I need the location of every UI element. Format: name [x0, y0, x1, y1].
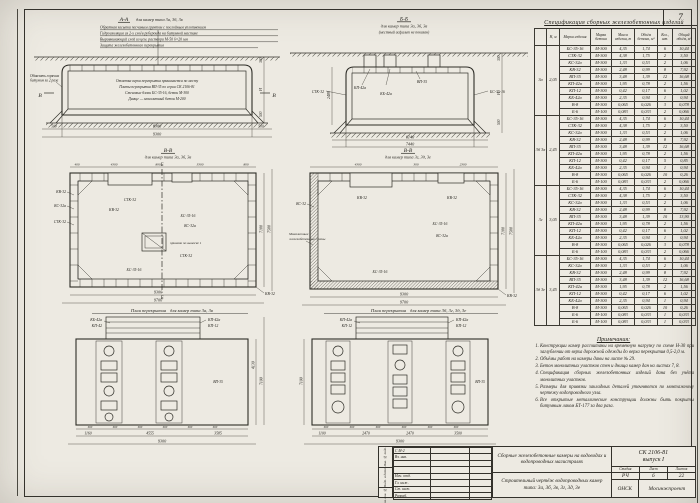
note-line: Гидроизоляция из 2-х слоёв рубероида на … — [99, 31, 198, 36]
spec-cell: БС-35-16 — [560, 186, 591, 193]
spec-cell: 0,99 — [635, 67, 658, 74]
spec-cell: КВ-32 — [560, 67, 591, 74]
spec-cell: 1,33 — [612, 130, 635, 137]
spec-cell: 6 — [658, 88, 673, 95]
spec-cell: 16,68 — [673, 74, 696, 81]
dim-label: 9300 — [153, 132, 162, 137]
spec-cell: 0,99 — [635, 137, 658, 144]
hatch-necks — [364, 55, 440, 67]
spec-row: КВ-32М-3002,480,9987,92 — [535, 137, 696, 144]
spec-cell: 4,35 — [612, 186, 635, 193]
spec-cell: КП-42а — [560, 221, 591, 228]
note-line: Защита железобетонного перекрытия — [100, 44, 164, 48]
spec-cell: 0,94 — [635, 165, 658, 172]
spec-cell: 0,94 — [673, 95, 696, 102]
spec-cell: 3,50 — [673, 193, 696, 200]
spec-cell: 0,065 — [612, 242, 635, 249]
cut-marker: Б — [160, 163, 164, 168]
spec-cell: М-300 — [591, 277, 612, 284]
spec-header: Н, м — [547, 29, 560, 46]
part-label: БС-35-16 — [180, 214, 196, 218]
spec-row: 3д 3е3,45БС-35-16М-3004,351,74610,44 — [535, 256, 696, 263]
spec-cell: 6 — [658, 186, 673, 193]
spec-cell: М-300 — [591, 284, 612, 291]
spec-cell: 0,53 — [635, 130, 658, 137]
spec-cell: М-300 — [591, 207, 612, 214]
title-block-side: Инв. № подл. Подп. и дата Взам. инв. № — [379, 447, 393, 497]
dim-label: 9300 — [154, 290, 163, 295]
spec-cell: 1,74 — [635, 116, 658, 123]
spec-cell: 0,26 — [673, 172, 696, 179]
dim-label: 8300 — [153, 124, 162, 129]
spec-cell: 10 — [658, 305, 673, 312]
spec-row: КП-42аМ-3001,950,7821,56 — [535, 284, 696, 291]
signature-scribble: ммм — [471, 461, 479, 466]
dim-label: 7100 — [260, 377, 264, 385]
part-label: ВП-35 — [475, 380, 485, 384]
spec-cell: 10,44 — [673, 46, 696, 53]
spec-cell: 2 — [658, 284, 673, 291]
spec-cell: КВ-32 — [560, 207, 591, 214]
sheet-value: 6 — [640, 473, 668, 480]
spec-header — [535, 29, 547, 46]
slab-right-panel: План перекрытия для камер типа 3б, 3г, 3… — [288, 305, 532, 448]
spec-cell: 4,35 — [612, 256, 635, 263]
spec-row: Б-6М-1000,0830,03310,033 — [535, 312, 696, 319]
spec-cell: КП-12 — [560, 158, 591, 165]
spec-cell: СТК-32 — [560, 123, 591, 130]
note-item: Спецификация сборных железобетонных изде… — [540, 371, 694, 383]
spec-cell: 1,95 — [612, 81, 635, 88]
note-line: Плиты перекрытия ВП-35 по серии СК 2106-… — [118, 85, 195, 89]
spec-cell: 1,39 — [635, 144, 658, 151]
dim-label: 800 — [243, 163, 248, 167]
spec-cell: 2,35 — [612, 298, 635, 305]
spec-cell: Б-6 — [560, 249, 591, 256]
section-bb-subtitle: для камер типа 3а, 3б, 3в — [381, 24, 428, 30]
spec-row: КП-12М-3000,420,1761,02 — [535, 228, 696, 235]
plan-left-panel: В-В для камер типа 3а, 3б, 3в 400 4300 8… — [50, 145, 290, 308]
spec-cell: 10 — [658, 214, 673, 221]
spec-row: КП-12М-3000,420,1750,85 — [535, 158, 696, 165]
sheet-frame-left — [17, 9, 18, 496]
spec-cell: 0,85 — [673, 158, 696, 165]
part-label: КВ-32 — [264, 292, 275, 296]
dim-label: 400 — [74, 163, 79, 167]
spec-row: КП-12М-3000,420,1761,02 — [535, 291, 696, 298]
spec-row: КС-32аМ-3001,330,5321,06 — [535, 200, 696, 207]
title-block: Инв. № подл. Подп. и дата Взам. инв. № С… — [378, 446, 696, 498]
dim-label: 1160 — [84, 432, 91, 436]
spec-cell: М-300 — [591, 186, 612, 193]
spec-cell: 1,02 — [673, 228, 696, 235]
signature-scribble: ммм — [471, 493, 479, 498]
spec-cell: 10 — [658, 172, 673, 179]
specification-title: Спецификация сборных железобетонных изде… — [534, 20, 694, 26]
spec-cell: 0,083 — [612, 179, 635, 186]
part-label: КВ-32 — [108, 208, 119, 212]
spec-cell: 0,94 — [673, 165, 696, 172]
spec-cell: КБ-42а — [560, 165, 591, 172]
spec-cell: 0,033 — [635, 312, 658, 319]
note-line: Обратная засыпка песчаным грунтом с посл… — [100, 25, 207, 30]
spec-row: ВП-35М-3003,481,391216,68 — [535, 74, 696, 81]
spec-cell: М-300 — [591, 144, 612, 151]
dim-label: 300 — [497, 55, 501, 61]
part-label: КП-42 — [91, 324, 102, 328]
part-label: КП-12 — [207, 324, 218, 328]
spec-cell: БС-35-16 — [560, 46, 591, 53]
monolithic-wall — [310, 173, 318, 289]
spec-cell: 0,94 — [635, 298, 658, 305]
spec-cell: М-100 — [591, 179, 612, 186]
spec-row: В-8М-3000,0650,02630,078 — [535, 102, 696, 109]
spec-cell: 1 — [658, 235, 673, 242]
spec-row: КС-32аМ-3001,330,5321,06 — [535, 263, 696, 270]
spec-cell: 0,083 — [612, 312, 635, 319]
spec-cell: 0,033 — [673, 319, 696, 326]
spec-cell: 1,75 — [635, 123, 658, 130]
spec-cell: КС-32а — [560, 263, 591, 270]
spec-cell: М-300 — [591, 298, 612, 305]
signature-name-scribble: ммммм — [432, 493, 445, 498]
spec-cell: 1,56 — [673, 221, 696, 228]
spec-cell: М-100 — [591, 319, 612, 326]
part-label: КВ-32 — [356, 196, 367, 200]
spec-cell: 0,026 — [635, 242, 658, 249]
spec-cell: В-8 — [560, 172, 591, 179]
hatch-opening-column — [388, 341, 412, 423]
spec-cell: М-300 — [591, 46, 612, 53]
spec-cell: В-8 — [560, 305, 591, 312]
spec-cell: КБ-42а — [560, 95, 591, 102]
dim-label: 7100 — [501, 227, 506, 235]
spec-height-cell: 2,05 — [547, 46, 560, 116]
spec-cell: 0,17 — [635, 291, 658, 298]
stamp-sig-table: С М-2ммммммммВз. инв.ммммммммммммммммммм… — [393, 447, 492, 500]
spec-cell: 1 — [658, 312, 673, 319]
dim-label: 2300 — [460, 163, 467, 167]
part-label: КВ-32 — [446, 196, 457, 200]
spec-cell: 1 — [658, 165, 673, 172]
spec-cell: 2,48 — [612, 67, 635, 74]
dim-label: 600 — [376, 425, 381, 429]
spec-cell: 1,39 — [635, 74, 658, 81]
hatch-opening-column — [156, 341, 182, 423]
spec-header: Марка бетона — [591, 29, 612, 46]
dim-label: 7500 — [509, 227, 514, 235]
spec-cell: 3,50 — [673, 123, 696, 130]
dim-label: 1100 — [318, 432, 325, 436]
spec-cell: 2,48 — [612, 137, 635, 144]
spec-cell: 1,95 — [612, 221, 635, 228]
spec-cell: М-300 — [591, 158, 612, 165]
organization-name: Мосинжпроект — [639, 480, 695, 497]
spec-cell: КВ-32 — [560, 137, 591, 144]
dim-label: 600 — [88, 425, 93, 429]
spec-cell: 0,17 — [635, 228, 658, 235]
spec-cell: 7,92 — [673, 137, 696, 144]
signature-role: Разраб. — [393, 493, 430, 499]
pit-label: приямок по выноске 1 — [170, 241, 202, 245]
wall-notch — [172, 173, 192, 182]
spec-cell: 5 — [658, 158, 673, 165]
note-item: Размеры для привязки закладных деталей у… — [540, 385, 694, 397]
spec-cell: 6 — [658, 228, 673, 235]
spec-cell: КБ-42а — [560, 235, 591, 242]
spec-cell: М-300 — [591, 200, 612, 207]
spec-row: КВ-32М-3002,480,9987,92 — [535, 207, 696, 214]
spec-cell: 2 — [658, 179, 673, 186]
specification-table: Н, м Марка изделия Марка бетона Масса из… — [534, 28, 696, 326]
section-aa-panel: А-А для камер типа 3а, 3б, 3в Обратная з… — [28, 13, 286, 147]
notes-title: Примечания: — [533, 337, 694, 343]
spec-cell: 6 — [658, 256, 673, 263]
spec-row: КБ-42аМ-3002,350,9410,94 — [535, 95, 696, 102]
spec-header: Масса изделия, т — [612, 29, 635, 46]
spec-cell: 1,56 — [673, 284, 696, 291]
spec-cell: 4,38 — [612, 53, 635, 60]
spec-cell: 16,68 — [673, 277, 696, 284]
spec-cell: 1,06 — [673, 263, 696, 270]
signature-scribble: ммм — [471, 468, 479, 473]
spec-cell: БС-35-16 — [560, 116, 591, 123]
spec-cell: М-300 — [591, 256, 612, 263]
spec-row: СТК-32М-3004,381,7523,50 — [535, 53, 696, 60]
ground-hatch — [290, 53, 528, 57]
spec-cell: 4,38 — [612, 193, 635, 200]
mono-label: Монолитные — [288, 232, 309, 236]
spec-cell: М-100 — [591, 312, 612, 319]
part-label: КБ-42а — [379, 92, 392, 96]
spec-cell: М-300 — [591, 242, 612, 249]
spec-row: СТК-32М-3004,381,7523,50 — [535, 123, 696, 130]
signature-name-scribble: ммммм — [432, 480, 445, 485]
spec-cell: 2,35 — [612, 165, 635, 172]
spec-header: Объём бетона, м³ — [635, 29, 658, 46]
spec-cell: 1,75 — [635, 193, 658, 200]
spec-cell: 1,56 — [673, 81, 696, 88]
spec-cell: 4,35 — [612, 116, 635, 123]
spec-cell: 0,42 — [612, 158, 635, 165]
spec-cell: Б-6 — [560, 312, 591, 319]
left-note: Обмазать горячим — [30, 74, 60, 78]
spec-cell: 0,033 — [673, 312, 696, 319]
spec-cell: 2,48 — [612, 270, 635, 277]
spec-cell: 0,53 — [635, 200, 658, 207]
spec-cell: М-300 — [591, 263, 612, 270]
spec-cell: 0,94 — [673, 298, 696, 305]
spec-cell: 2 — [658, 151, 673, 158]
spec-cell: 0,066 — [673, 109, 696, 116]
spec-cell: 7,92 — [673, 270, 696, 277]
part-label: БС-35-16 — [372, 270, 388, 274]
spec-cell: 0,083 — [612, 249, 635, 256]
spec-cell: М-300 — [591, 291, 612, 298]
dim-label: 4130 — [252, 361, 256, 369]
stage-sheet-cell: Стадия Лист Листов РЧ 6 22 — [612, 467, 695, 480]
spec-cell: 2,35 — [612, 235, 635, 242]
spec-cell: М-300 — [591, 60, 612, 67]
spec-row: 3а2,05БС-35-16М-3004,351,74610,44 — [535, 46, 696, 53]
part-label: СТК-32 — [54, 220, 66, 224]
spec-cell: КП-42а — [560, 151, 591, 158]
dim-label: 6140 — [406, 135, 415, 140]
dim-label: 9300 — [158, 439, 167, 444]
spec-cell: ВП-35 — [560, 74, 591, 81]
slab-joints — [68, 65, 246, 71]
dim-label: 300 — [259, 57, 263, 63]
slab-left-panel: План перекрытия для камер типа 3а, 3в КБ… — [50, 305, 290, 448]
spec-cell: 1,74 — [635, 186, 658, 193]
project-title: Сборные железобетонные камеры на водовод… — [493, 447, 611, 473]
slab-title: План перекрытия — [370, 308, 406, 313]
spec-cell: 12 — [658, 144, 673, 151]
spec-row: КС-32аМ-3001,330,5321,06 — [535, 60, 696, 67]
spec-cell: КС-32а — [560, 200, 591, 207]
spec-cell: М-300 — [591, 123, 612, 130]
spec-cell: 0,033 — [635, 249, 658, 256]
part-label: КВ-32 — [506, 294, 517, 298]
spec-cell: 0,94 — [635, 235, 658, 242]
spec-cell: 0,078 — [673, 102, 696, 109]
spec-cell: 2 — [658, 123, 673, 130]
spec-cell: КС-32а — [560, 60, 591, 67]
spec-cell: 0,033 — [635, 109, 658, 116]
spec-cell: 4,38 — [612, 123, 635, 130]
chamber-outline — [346, 67, 474, 125]
plan-subtitle: для камер типа 3г, 3д, 3е — [385, 155, 431, 161]
spec-cell: 4,35 — [612, 46, 635, 53]
spec-cell: 8 — [658, 207, 673, 214]
dim-label: 600 — [188, 425, 193, 429]
spec-cell: ВП-35 — [560, 144, 591, 151]
spec-cell: 1,39 — [635, 214, 658, 221]
part-label: КП-12 — [341, 324, 352, 328]
spec-row: 3г3,05БС-35-16М-3004,351,74610,44 — [535, 186, 696, 193]
section-aa-notes: Обратная засыпка песчаным грунтом с посл… — [99, 25, 278, 48]
signature-scribble: ммм — [471, 474, 479, 479]
part-label: КП-42а — [455, 318, 468, 322]
spec-cell: КП-12 — [560, 228, 591, 235]
dim-label: 3300 — [197, 163, 204, 167]
spec-cell: КБ-42а — [560, 298, 591, 305]
dim-label: 300 — [413, 163, 418, 167]
spec-cell: 2 — [658, 81, 673, 88]
spec-row: КП-12М-3000,420,1761,02 — [535, 88, 696, 95]
spec-cell: 0,94 — [673, 235, 696, 242]
note-item: Все открытые металлические конструкции д… — [540, 398, 694, 410]
organization-short: ОНСК — [612, 480, 639, 497]
signature-scribble: ммм — [471, 455, 479, 460]
spec-row: Б-6М-1000,0830,03320,066 — [535, 179, 696, 186]
spec-cell: Б-6 — [560, 179, 591, 186]
note-line: Выравнивающий слой из цем. раствора М-50… — [100, 37, 188, 42]
spec-row: КБ-42аМ-3002,350,9410,94 — [535, 165, 696, 172]
spec-cell: 8 — [658, 270, 673, 277]
spec-cell: 0,78 — [635, 81, 658, 88]
dim-label: 2470 — [362, 432, 370, 436]
spec-cell: 2 — [658, 60, 673, 67]
spec-cell: 0,083 — [612, 319, 635, 326]
dim-label: 9300 — [396, 439, 405, 444]
part-label: КС-32а — [183, 224, 196, 228]
spec-cell: 8 — [658, 67, 673, 74]
part-label: СТК-32 — [180, 254, 192, 258]
spec-cell: М-300 — [591, 130, 612, 137]
note-item: Бетон монолитных участков стен и днища к… — [540, 364, 694, 370]
spec-cell: М-300 — [591, 270, 612, 277]
dim-label: 600 — [163, 425, 168, 429]
spec-cell: 0,17 — [635, 158, 658, 165]
spec-cell: ВП-35 — [560, 277, 591, 284]
cut-marker: В — [38, 93, 42, 99]
spec-cell: 3,48 — [612, 214, 635, 221]
spec-cell: 2 — [658, 221, 673, 228]
spec-cell: 10,44 — [673, 186, 696, 193]
spec-cell: М-300 — [591, 305, 612, 312]
dim-label: 2480 — [326, 91, 331, 99]
part-label: КС-32а — [53, 204, 66, 208]
spec-cell: 1,33 — [612, 200, 635, 207]
dim-label: 500 — [259, 111, 263, 117]
spec-cell: 0,026 — [635, 172, 658, 179]
spec-cell: М-300 — [591, 165, 612, 172]
spec-cell: М-300 — [591, 228, 612, 235]
dim-label: 2470 — [406, 432, 414, 436]
spec-row: В-8М-3000,0650,02630,078 — [535, 242, 696, 249]
part-label: ВП-35 — [213, 380, 223, 384]
spec-cell: М-300 — [591, 193, 612, 200]
spec-cell: 1 — [658, 298, 673, 305]
spec-table-body: 3а2,05БС-35-16М-3004,351,74610,44СТК-32М… — [535, 46, 696, 326]
stage-value: РЧ — [612, 473, 640, 480]
dim-label: 9700 — [154, 298, 163, 303]
spec-row: В-8М-3000,0650,026100,26 — [535, 172, 696, 179]
spec-cell: М-300 — [591, 221, 612, 228]
note-item: Конструкции камер рассчитаны на временну… — [540, 344, 694, 356]
spec-cell: 0,17 — [635, 88, 658, 95]
dim-label: 600 — [324, 425, 329, 429]
spec-cell: 0,78 — [635, 221, 658, 228]
spec-cell: М-300 — [591, 95, 612, 102]
title-block-right: СК 2106-81 выпуск I Стадия Лист Листов Р… — [612, 447, 695, 497]
dim-label: 7100 — [300, 377, 304, 385]
spec-cell: СТК-32 — [560, 193, 591, 200]
spec-header: Кол., шт. — [658, 29, 673, 46]
spec-row: Б-6М-1000,0830,03320,066 — [535, 249, 696, 256]
organization-cell: ОНСК Мосинжпроект — [612, 480, 695, 497]
spec-cell: Б-6 — [560, 109, 591, 116]
spec-row: Б-6М-1000,0830,03310,033 — [535, 319, 696, 326]
spec-cell: 0,065 — [612, 172, 635, 179]
part-label: СТК-32 — [312, 90, 324, 94]
spec-cell: 2,48 — [612, 207, 635, 214]
section-bb-panel: Б-Б для камер типа 3а, 3б, 3в (местный а… — [286, 13, 532, 151]
dim-label: 600 — [350, 425, 355, 429]
side-label: Инв. № подл. — [383, 447, 387, 467]
spec-row: КС-32аМ-3001,330,5321,06 — [535, 130, 696, 137]
spec-cell: 0,066 — [673, 179, 696, 186]
spec-cell: 3,50 — [673, 53, 696, 60]
spec-cell: 1,74 — [635, 46, 658, 53]
dim-label: 600 — [138, 425, 143, 429]
spec-row: КП-42аМ-3001,950,7821,56 — [535, 221, 696, 228]
spec-row: ВП-35М-3003,481,391013,90 — [535, 214, 696, 221]
spec-cell: 2 — [658, 193, 673, 200]
spec-cell: 3,48 — [612, 74, 635, 81]
dim-label: 3500 — [454, 432, 462, 436]
